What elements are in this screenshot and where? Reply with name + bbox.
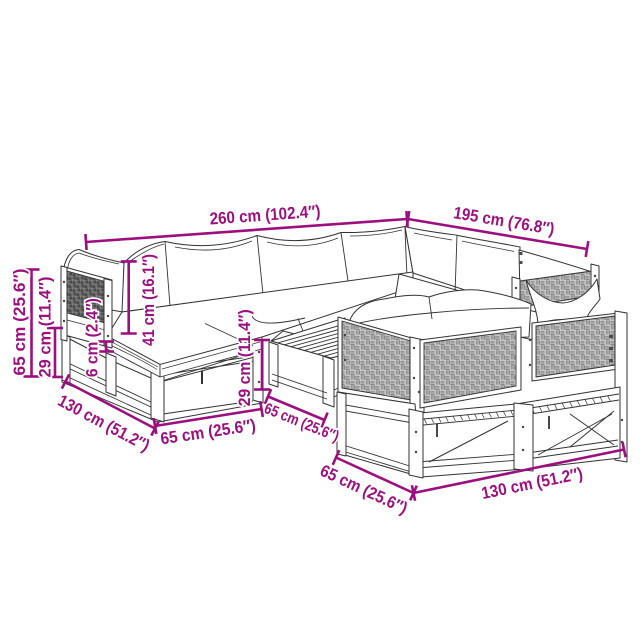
svg-text:65 cm (25.6″): 65 cm (25.6″) [10, 269, 29, 376]
svg-text:41 cm (16.1″): 41 cm (16.1″) [139, 254, 158, 346]
svg-text:29 cm (11.4″): 29 cm (11.4″) [36, 277, 55, 378]
svg-text:6 cm (2.4″): 6 cm (2.4″) [82, 298, 101, 377]
svg-text:29 cm (11.4″): 29 cm (11.4″) [235, 309, 254, 406]
